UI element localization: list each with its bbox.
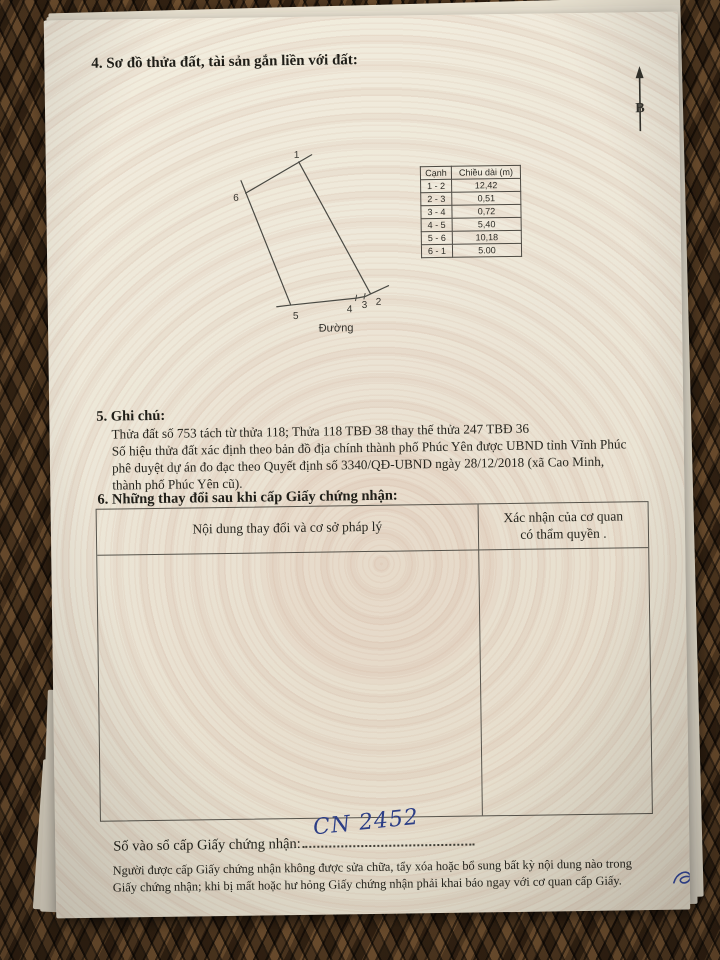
vertex-label-5: 5 bbox=[293, 311, 299, 322]
changes-table: Nội dung thay đổi và cơ sở pháp lý Xác n… bbox=[96, 501, 653, 822]
north-arrow-icon: B bbox=[624, 62, 655, 137]
photo-background: 4. Sơ đồ thửa đất, tài sản gắn liền với … bbox=[0, 0, 720, 960]
vertex-label-1: 1 bbox=[294, 150, 300, 161]
length-column-header: Chiều dài (m) bbox=[451, 165, 520, 179]
registry-label: Số vào sổ cấp Giấy chứng nhận: bbox=[113, 836, 301, 855]
registry-line: Số vào sổ cấp Giấy chứng nhận: bbox=[113, 832, 475, 856]
edge-length-table: Cạnh Chiều dài (m) 1 - 212,42 2 - 30,51 … bbox=[420, 165, 522, 258]
road-boundary-line bbox=[277, 286, 389, 307]
header-divider bbox=[97, 547, 648, 556]
vertex-label-2: 2 bbox=[376, 297, 382, 308]
changes-column-header: Nội dung thay đổi và cơ sở pháp lý bbox=[97, 517, 478, 538]
column-divider bbox=[478, 504, 483, 815]
vertex-label-3: 3 bbox=[362, 300, 368, 311]
certificate-page: 4. Sơ đồ thửa đất, tài sản gắn liền với … bbox=[44, 12, 690, 919]
parcel-edge-1-2 bbox=[299, 161, 371, 295]
parcel-edge-5-6 bbox=[241, 180, 291, 306]
compass-north-label: B bbox=[635, 101, 645, 116]
table-row: 6 - 15.00 bbox=[421, 243, 521, 257]
section5-title: 5. Ghi chú: bbox=[96, 408, 165, 426]
edge-column-header: Cạnh bbox=[420, 166, 451, 179]
road-label: Đường bbox=[319, 322, 354, 334]
section4-title: 4. Sơ đồ thửa đất, tài sản gắn liền với … bbox=[91, 52, 358, 73]
signature-mark bbox=[671, 866, 691, 891]
table-header-row: Cạnh Chiều dài (m) bbox=[420, 165, 520, 179]
vertex-label-4: 4 bbox=[347, 304, 353, 315]
parcel-edge-6-1 bbox=[245, 155, 312, 193]
confirmation-column-header: Xác nhận của cơ quan có thẩm quyền . bbox=[479, 507, 648, 543]
vertex-label-6: 6 bbox=[233, 193, 239, 204]
